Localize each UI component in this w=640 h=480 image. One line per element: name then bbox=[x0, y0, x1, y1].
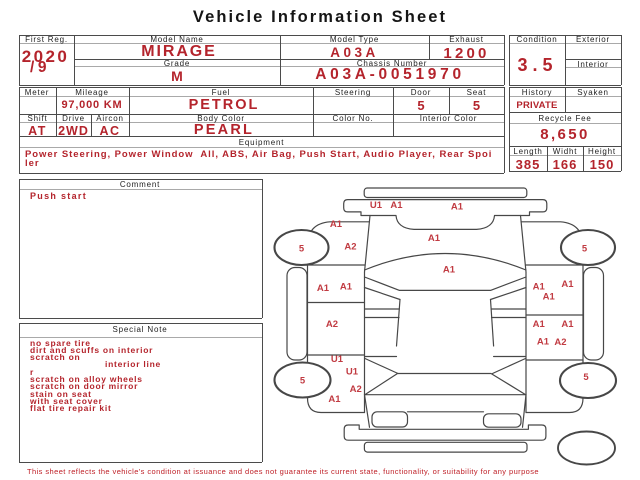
svg-text:A1: A1 bbox=[561, 279, 574, 290]
svg-text:5: 5 bbox=[299, 243, 305, 254]
svg-text:U1: U1 bbox=[331, 354, 344, 365]
svg-text:A2: A2 bbox=[554, 337, 566, 348]
svg-text:A1: A1 bbox=[317, 283, 330, 294]
svg-text:U1: U1 bbox=[346, 367, 359, 378]
svg-text:5: 5 bbox=[582, 243, 588, 254]
svg-text:A1: A1 bbox=[443, 265, 456, 276]
svg-text:A1: A1 bbox=[543, 292, 556, 303]
svg-text:A1: A1 bbox=[451, 202, 464, 213]
svg-text:A1: A1 bbox=[561, 319, 574, 330]
svg-text:5: 5 bbox=[583, 372, 589, 383]
svg-text:A2: A2 bbox=[326, 319, 338, 330]
svg-text:A1: A1 bbox=[330, 219, 343, 230]
svg-text:A2: A2 bbox=[350, 384, 362, 395]
svg-text:A1: A1 bbox=[537, 337, 550, 348]
svg-text:A1: A1 bbox=[533, 319, 546, 330]
svg-text:U1: U1 bbox=[370, 200, 383, 211]
svg-text:A1: A1 bbox=[328, 394, 341, 405]
svg-text:A2: A2 bbox=[344, 242, 356, 253]
svg-text:A1: A1 bbox=[428, 233, 441, 244]
svg-text:5: 5 bbox=[300, 376, 306, 387]
svg-text:A1: A1 bbox=[390, 200, 403, 211]
svg-text:A1: A1 bbox=[340, 282, 353, 293]
